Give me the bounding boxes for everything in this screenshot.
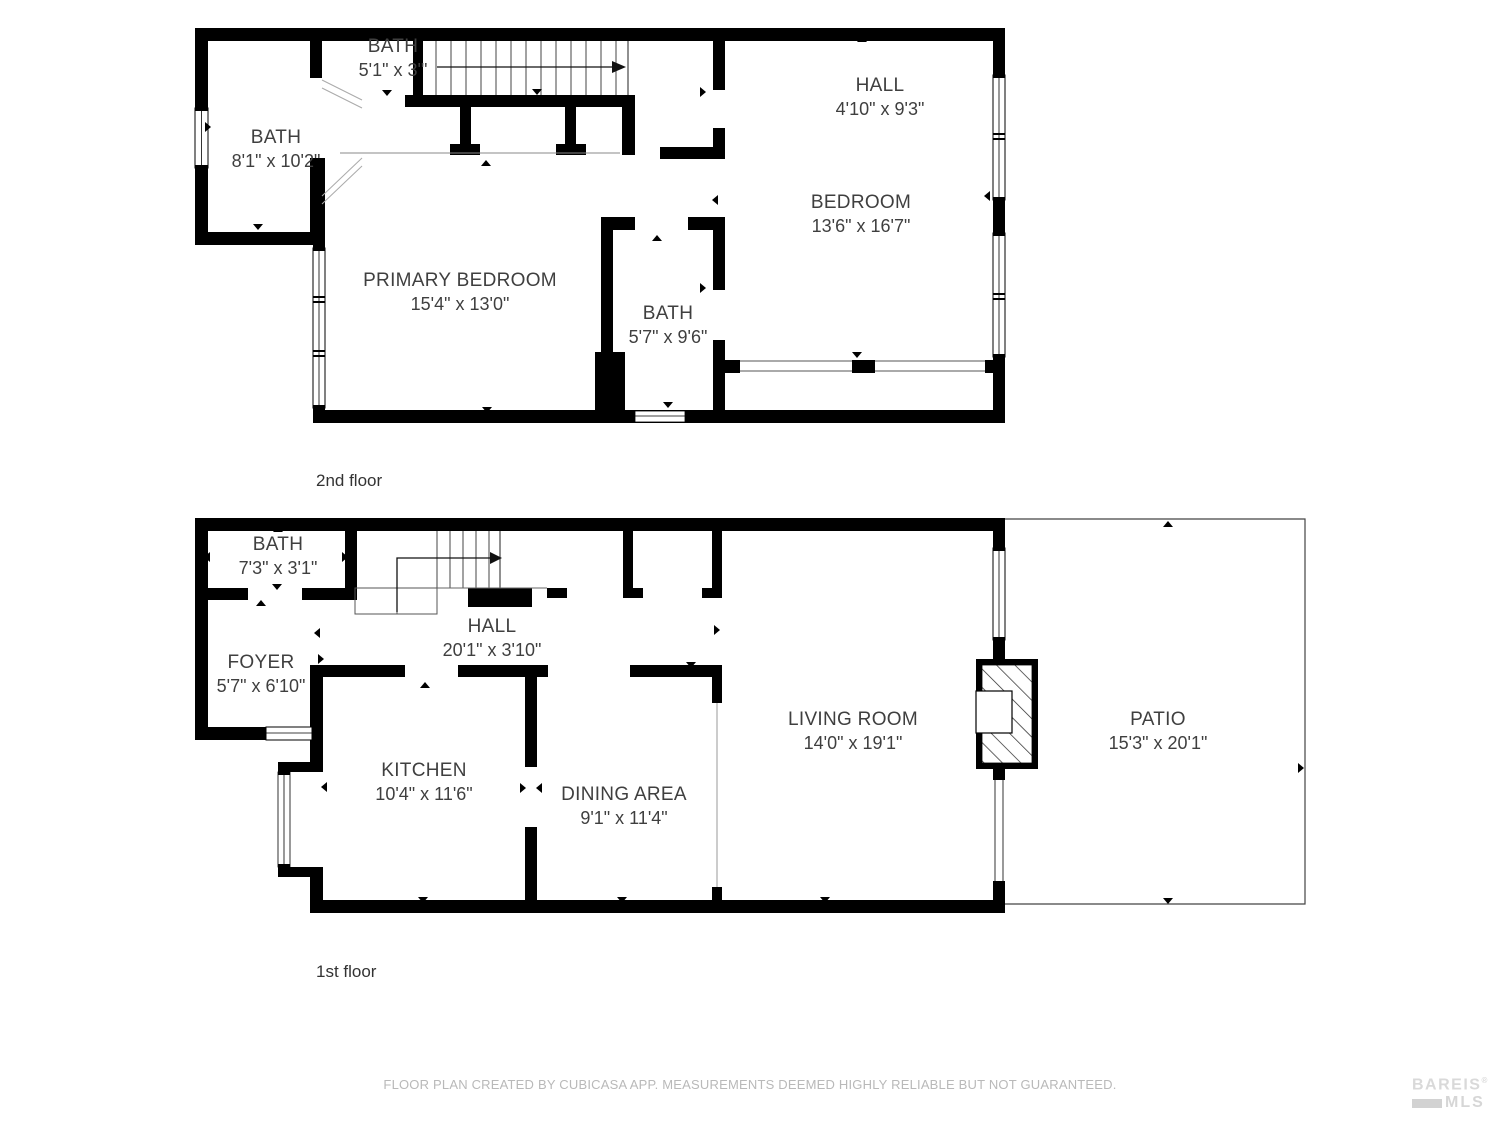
room-label-kitchen: KITCHEN 10'4" x 11'6" (375, 760, 472, 806)
room-label-bath-left: BATH 8'1" x 10'2" (232, 127, 321, 173)
room-label-bath-right: BATH 5'7" x 9'6" (629, 303, 708, 349)
floor-label-1st: 1st floor (316, 962, 376, 982)
room-label-living-room: LIVING ROOM 14'0" x 19'1" (788, 709, 918, 755)
floor-plan-drawing (0, 0, 1500, 1125)
room-label-bath-1f: BATH 7'3" x 3'1" (239, 534, 318, 580)
room-label-primary-bedroom: PRIMARY BEDROOM 15'4" x 13'0" (363, 270, 557, 316)
room-label-foyer: FOYER 5'7" x 6'10" (217, 652, 306, 698)
disclaimer-text: FLOOR PLAN CREATED BY CUBICASA APP. MEAS… (0, 1077, 1500, 1092)
room-label-dining-area: DINING AREA 9'1" x 11'4" (561, 784, 687, 830)
logo-mls-text: MLS (1445, 1095, 1485, 1111)
room-label-bedroom: BEDROOM 13'6" x 16'7" (811, 192, 911, 238)
second-floor-stairs (436, 41, 628, 95)
room-label-hall-1f: HALL 20'1" x 3'10" (443, 616, 542, 662)
logo-bar (1412, 1099, 1442, 1108)
room-label-patio: PATIO 15'3" x 20'1" (1109, 709, 1208, 755)
room-label-hall-2f: HALL 4'10" x 9'3" (836, 75, 925, 121)
bareis-mls-logo: BAREIS® MLS (1412, 1077, 1498, 1111)
floor-plan-canvas: BATH 5'1" x 3'" BATH 8'1" x 10'2" PRIMAR… (0, 0, 1500, 1125)
logo-bareis-text: BAREIS (1412, 1076, 1481, 1093)
registered-mark-icon: ® (1481, 1076, 1488, 1085)
room-label-bath-small: BATH 5'1" x 3'" (359, 36, 428, 82)
floor-label-2nd: 2nd floor (316, 471, 382, 491)
